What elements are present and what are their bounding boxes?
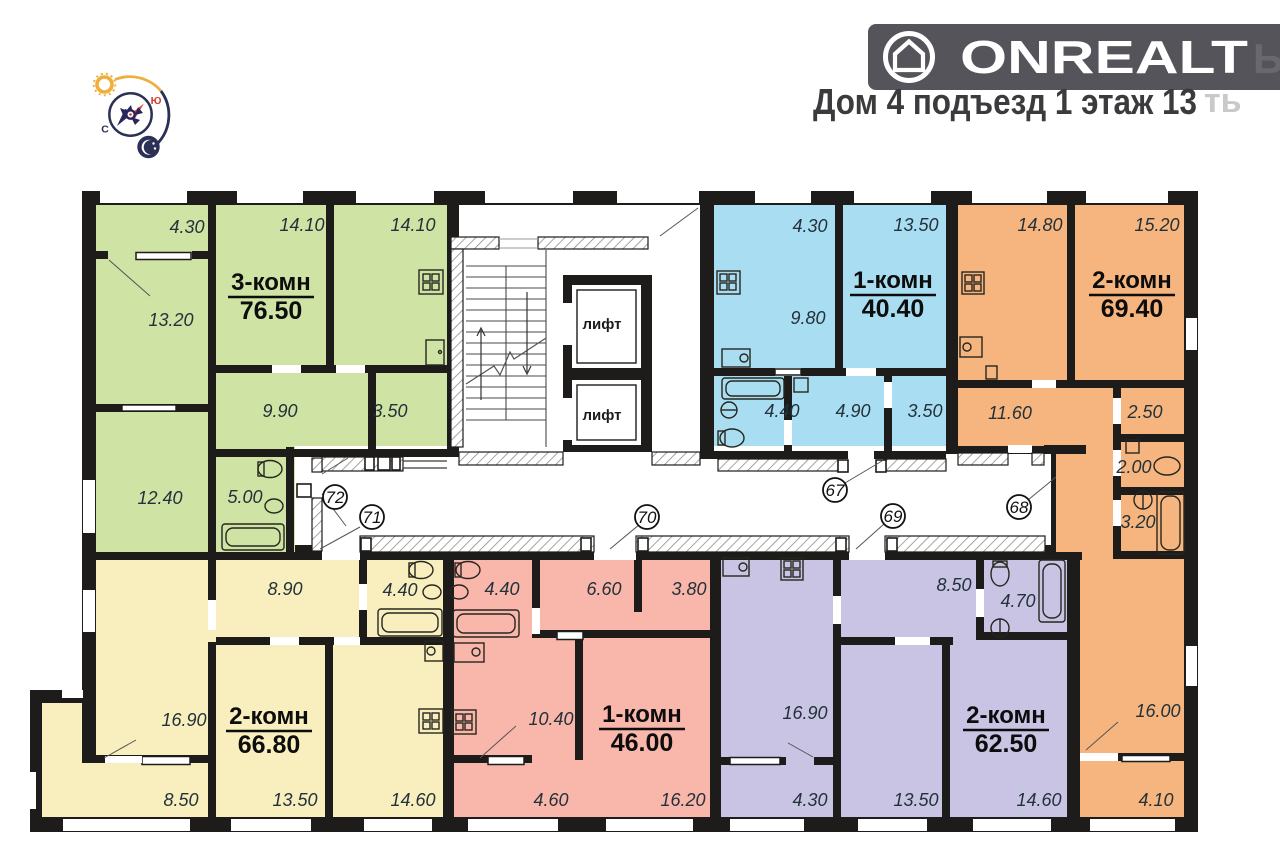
svg-text:66.80: 66.80 (238, 731, 301, 759)
svg-text:3.50: 3.50 (372, 401, 407, 421)
svg-text:8.90: 8.90 (267, 579, 302, 599)
svg-text:14.10: 14.10 (279, 215, 324, 235)
svg-text:4.90: 4.90 (835, 401, 870, 421)
svg-text:2-комн: 2-комн (966, 702, 1046, 729)
svg-text:68: 68 (1010, 498, 1029, 517)
svg-text:4.40: 4.40 (382, 580, 417, 600)
svg-text:76.50: 76.50 (240, 297, 303, 325)
svg-text:13.50: 13.50 (272, 790, 317, 810)
svg-text:6.60: 6.60 (586, 579, 621, 599)
svg-text:46.00: 46.00 (611, 729, 674, 757)
svg-text:3.80: 3.80 (671, 579, 706, 599)
svg-text:лифт: лифт (582, 316, 621, 333)
svg-text:3.50: 3.50 (907, 401, 942, 421)
svg-text:2-комн: 2-комн (1092, 267, 1172, 294)
svg-text:14.60: 14.60 (390, 790, 435, 810)
svg-text:9.80: 9.80 (790, 308, 825, 328)
svg-text:11.60: 11.60 (988, 403, 1032, 423)
svg-text:15.20: 15.20 (1134, 215, 1179, 235)
svg-text:ONREALT: ONREALT (960, 31, 1248, 83)
svg-text:70: 70 (638, 508, 657, 527)
svg-text:14.80: 14.80 (1017, 215, 1062, 235)
svg-text:3.20: 3.20 (1120, 512, 1155, 532)
svg-text:40.40: 40.40 (862, 295, 925, 323)
svg-text:4.10: 4.10 (1138, 790, 1173, 810)
svg-text:1-комн: 1-комн (602, 701, 682, 728)
svg-text:8.50: 8.50 (163, 790, 198, 810)
svg-text:8.50: 8.50 (936, 575, 971, 595)
svg-text:2.50: 2.50 (1126, 402, 1162, 422)
svg-text:1-комн: 1-комн (853, 267, 933, 294)
svg-text:4.30: 4.30 (792, 790, 827, 810)
svg-text:С: С (101, 124, 109, 136)
svg-text:4.60: 4.60 (533, 790, 568, 810)
svg-text:13.50: 13.50 (893, 790, 938, 810)
svg-text:Ь: Ь (1253, 35, 1280, 82)
svg-text:4.70: 4.70 (1000, 591, 1035, 611)
svg-text:4.40: 4.40 (484, 579, 519, 599)
svg-text:67: 67 (826, 481, 845, 500)
svg-text:ть: ть (1204, 82, 1242, 120)
svg-text:16.20: 16.20 (660, 790, 705, 810)
svg-text:14.10: 14.10 (390, 215, 435, 235)
svg-text:9.90: 9.90 (262, 401, 297, 421)
svg-text:16.90: 16.90 (782, 703, 827, 723)
svg-text:14.60: 14.60 (1016, 790, 1061, 810)
svg-text:13.50: 13.50 (893, 215, 938, 235)
svg-text:3-комн: 3-комн (231, 269, 311, 296)
svg-text:4.30: 4.30 (169, 217, 204, 237)
svg-text:71: 71 (363, 508, 382, 527)
svg-text:16.00: 16.00 (1135, 701, 1180, 721)
svg-text:2.00: 2.00 (1115, 457, 1151, 477)
svg-text:4.40: 4.40 (764, 401, 799, 421)
svg-text:62.50: 62.50 (975, 730, 1038, 758)
svg-text:72: 72 (326, 488, 345, 507)
svg-text:Ю: Ю (151, 95, 162, 107)
svg-text:69: 69 (884, 507, 903, 526)
svg-text:13.20: 13.20 (148, 310, 193, 330)
svg-text:12.40: 12.40 (137, 488, 182, 508)
svg-text:69.40: 69.40 (1101, 295, 1164, 323)
svg-text:10.40: 10.40 (528, 709, 573, 729)
svg-text:2-комн: 2-комн (229, 703, 309, 730)
svg-text:5.00: 5.00 (227, 487, 262, 507)
svg-text:16.90: 16.90 (161, 710, 206, 730)
svg-text:Дом 4 подъезд 1 этаж 13: Дом 4 подъезд 1 этаж 13 (813, 81, 1197, 122)
svg-text:4.30: 4.30 (792, 216, 827, 236)
svg-text:лифт: лифт (582, 407, 621, 424)
